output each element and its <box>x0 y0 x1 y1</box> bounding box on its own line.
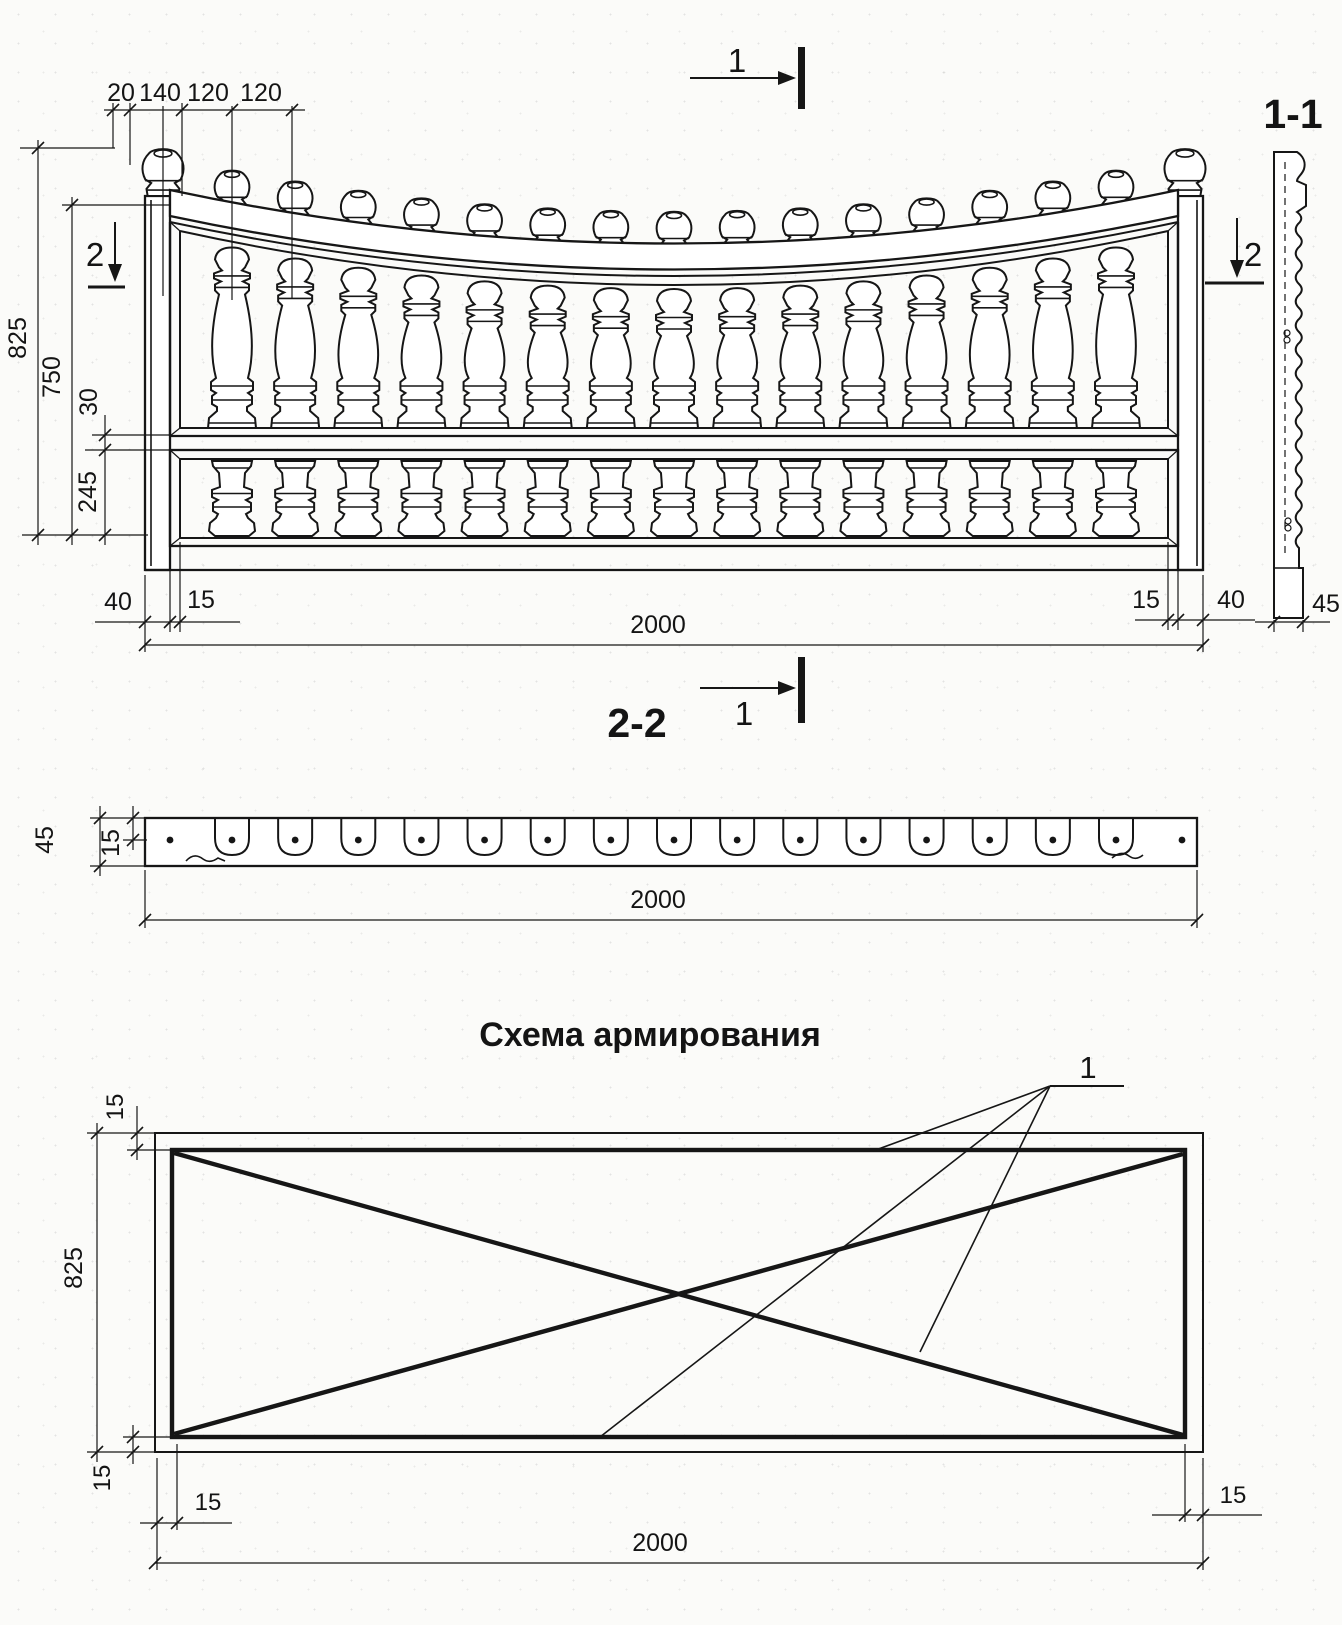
marker-2-left-label: 2 <box>86 236 104 273</box>
dim-2000-strip: 2000 <box>630 886 686 914</box>
dim-40-left: 40 <box>104 588 132 616</box>
section-2-2: 2-2 45 15 2000 <box>31 700 1197 920</box>
dim-15-right: 15 <box>1132 586 1160 614</box>
dim-45-strip: 45 <box>31 826 59 854</box>
section-marker-2-right: 2 <box>1205 218 1264 283</box>
blueprint-canvas: 20 140 120 120 825 750 30 245 40 15 15 4… <box>0 0 1342 1620</box>
left-post <box>145 196 170 570</box>
section-2-2-label: 2-2 <box>607 700 666 746</box>
marker-2-right-label: 2 <box>1244 236 1262 273</box>
strip-outline <box>145 818 1197 866</box>
section-marker-1-top: 1 <box>690 42 805 109</box>
dim-15-strip: 15 <box>97 829 125 857</box>
dim-245: 245 <box>74 471 102 513</box>
profile-outline <box>1274 152 1306 618</box>
right-post <box>1178 196 1203 570</box>
front-view: 20 140 120 120 825 750 30 245 40 15 15 4… <box>4 42 1264 732</box>
dim-825-reinf: 825 <box>60 1247 88 1289</box>
dim-140: 140 <box>139 79 181 107</box>
dim-15-reinf-right: 15 <box>1220 1482 1247 1509</box>
dim-2000-reinf: 2000 <box>632 1529 688 1557</box>
lower-balusters <box>209 461 1139 536</box>
dim-15-left: 15 <box>187 586 215 614</box>
dim-20: 20 <box>107 79 135 107</box>
rebar-callout-label: 1 <box>1079 1050 1096 1085</box>
reinforcement-title: Схема армирования <box>479 1016 821 1054</box>
dim-750: 750 <box>38 356 66 398</box>
upper-balusters <box>208 247 1140 428</box>
dim-30: 30 <box>75 388 103 416</box>
dim-825: 825 <box>4 317 32 359</box>
dim-bottom: 40 15 15 40 2000 <box>95 586 1255 645</box>
marker-1-top-label: 1 <box>728 42 746 79</box>
section-1-1-label: 1-1 <box>1263 91 1322 137</box>
section-marker-2-left: 2 <box>86 222 125 287</box>
section-1-1: 1-1 45 <box>1255 91 1340 622</box>
section-marker-1-bottom: 1 <box>700 657 805 732</box>
dim-15-reinf-left: 15 <box>195 1489 222 1516</box>
marker-1-bottom-label: 1 <box>735 695 753 732</box>
dim-45-profile: 45 <box>1312 590 1340 618</box>
dim-15-reinf-top: 15 <box>102 1094 129 1121</box>
dim-40-right: 40 <box>1217 586 1245 614</box>
reinforcement-scheme: Схема армирования 1 825 15 15 15 15 2000 <box>60 1016 1262 1563</box>
dim-left: 825 750 30 245 <box>4 140 105 545</box>
dim-2000-front: 2000 <box>630 611 686 639</box>
dim-120b: 120 <box>240 79 282 107</box>
dim-15-reinf-bottomleft: 15 <box>89 1465 116 1492</box>
dim-120a: 120 <box>187 79 229 107</box>
